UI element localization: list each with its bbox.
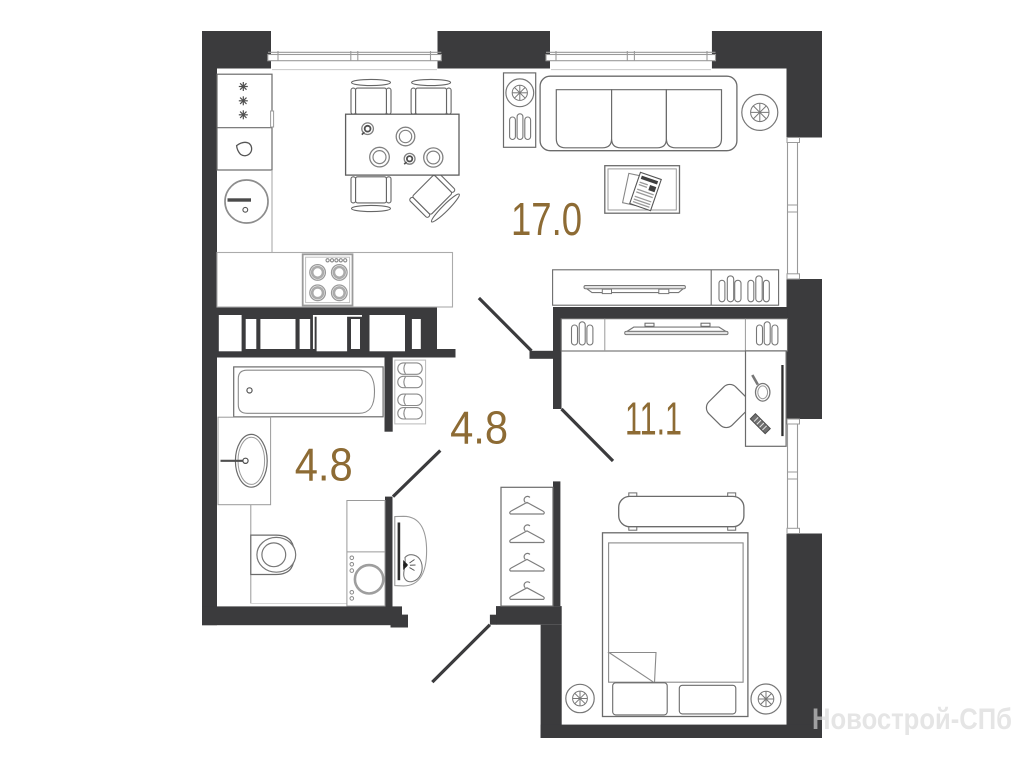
svg-text:11.1: 11.1 [625, 393, 682, 445]
svg-text:17.0: 17.0 [511, 193, 582, 245]
svg-text:Новострой-СПб: Новострой-СПб [812, 703, 1012, 736]
svg-text:4.8: 4.8 [450, 402, 508, 454]
svg-text:4.8: 4.8 [295, 439, 353, 491]
